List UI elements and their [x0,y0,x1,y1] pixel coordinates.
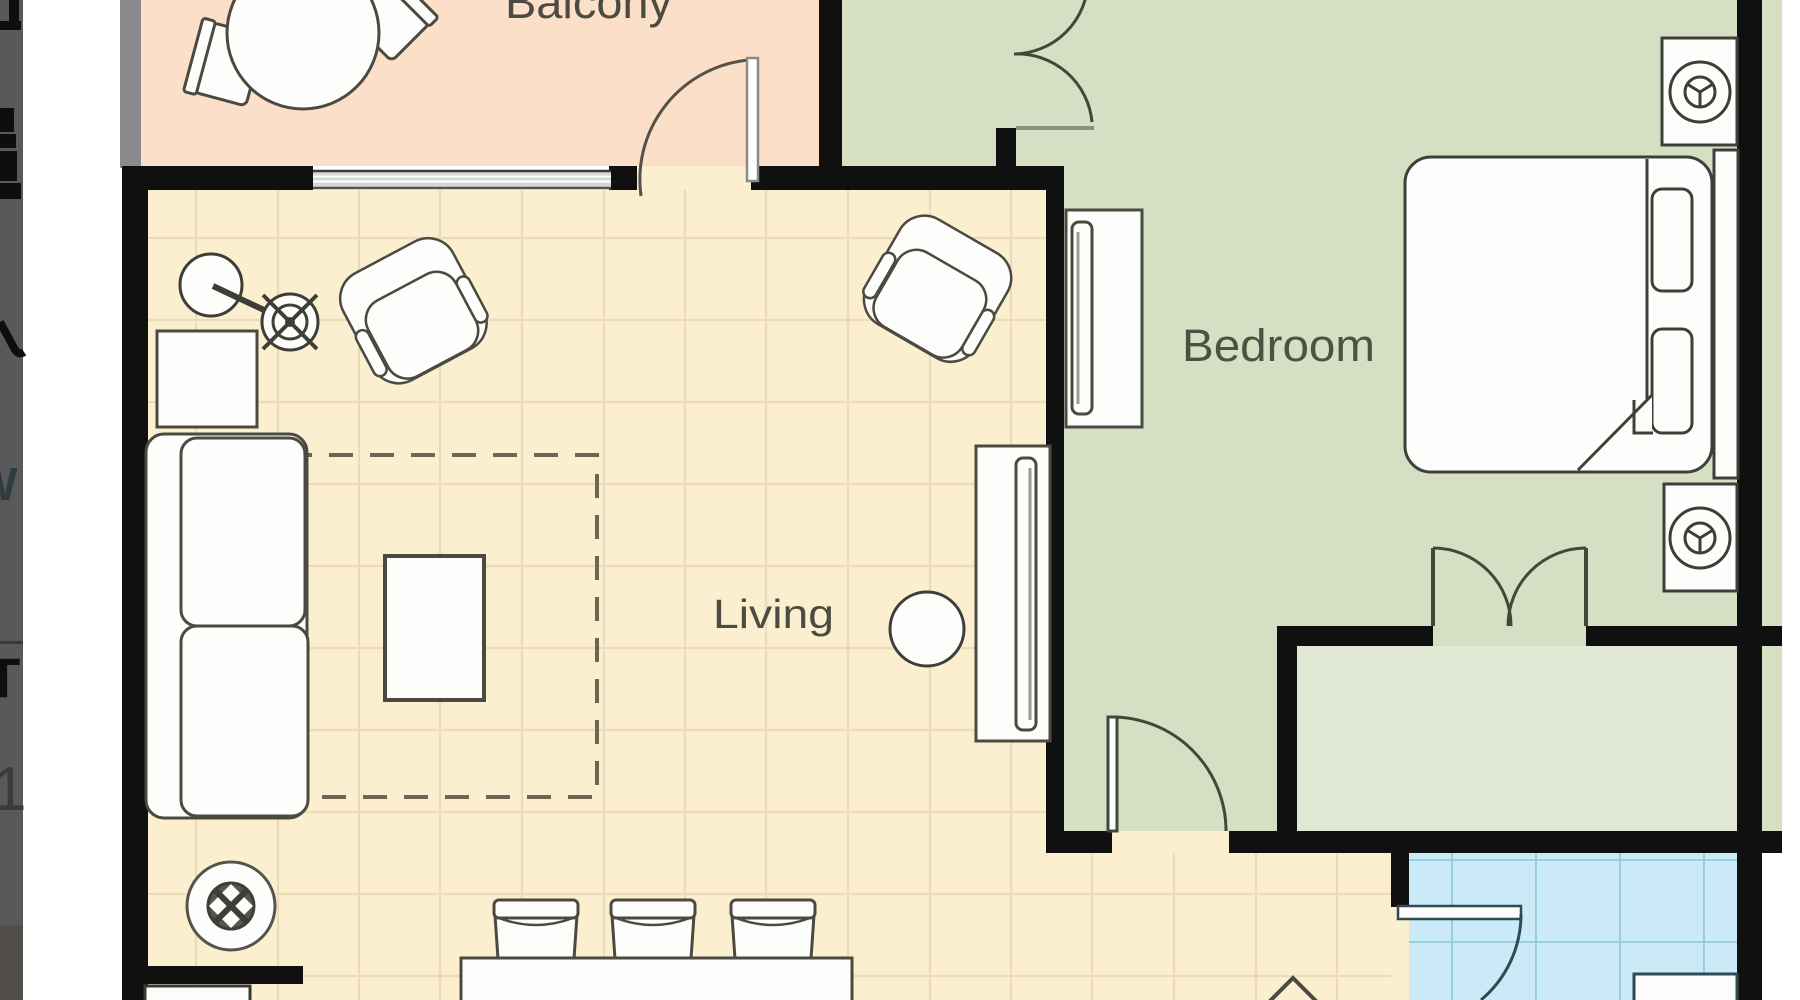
svg-text:Balcony: Balcony [505,0,672,28]
svg-text:T: T [0,646,20,709]
svg-text:Living: Living [713,591,834,637]
svg-text:Bedroom: Bedroom [1182,320,1375,371]
svg-text:1: 1 [0,755,26,824]
svg-text:W: W [0,458,18,510]
